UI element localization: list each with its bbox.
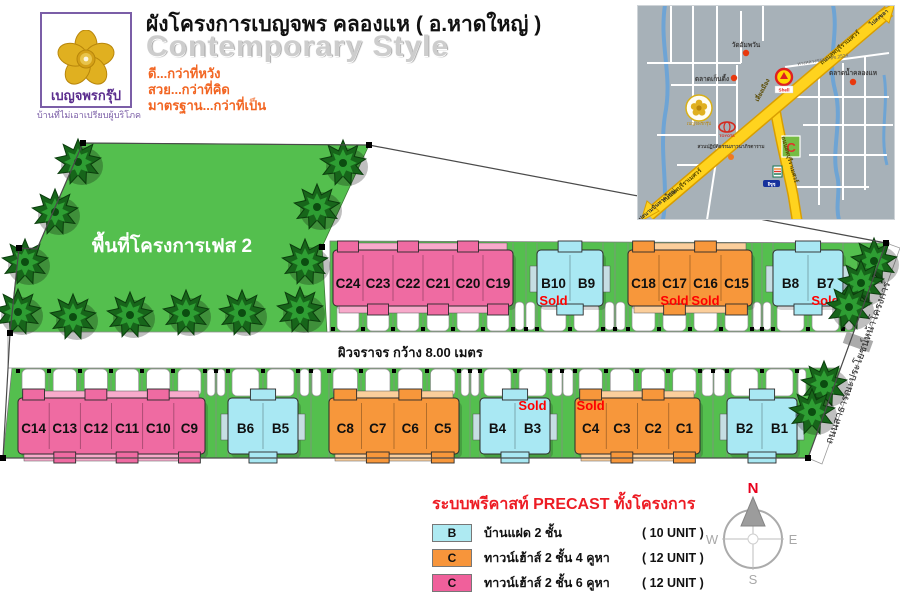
unit-label-C11: C11 bbox=[115, 421, 140, 436]
lot-corner-dot bbox=[771, 327, 775, 331]
unit-bump bbox=[428, 304, 449, 315]
legend-row-c4: C ทาวน์เฮ้าส์ 2 ชั้น 4 คูหา ( 12 UNIT ) bbox=[432, 548, 732, 568]
unit-bump bbox=[488, 304, 509, 315]
market2-dot bbox=[850, 79, 856, 85]
slogan-1: ดี...กว่าที่หวัง bbox=[148, 66, 221, 82]
driveway bbox=[563, 369, 573, 396]
unit-label-C18: C18 bbox=[631, 276, 656, 291]
driveway bbox=[217, 369, 225, 396]
unit-bump bbox=[85, 389, 107, 400]
boundary-corner-dot bbox=[0, 455, 6, 461]
sold-label-B3: Sold bbox=[518, 398, 546, 413]
unit-label-B7: B7 bbox=[817, 276, 834, 291]
lot-corner-dot bbox=[719, 327, 723, 331]
unit-label-C20: C20 bbox=[456, 276, 481, 291]
unit-bump bbox=[633, 241, 655, 252]
driveway bbox=[471, 369, 479, 396]
legend-count-c6: ( 12 UNIT ) bbox=[642, 576, 704, 590]
slogan-2: สวย...กว่าที่คิด bbox=[148, 82, 230, 98]
sold-label-C4: Sold bbox=[577, 398, 605, 413]
lot-corner-dot bbox=[226, 369, 230, 373]
lot-corner-dot bbox=[666, 369, 670, 373]
unit-label-B9: B9 bbox=[578, 276, 595, 291]
page: C24C23C22C21C20C19B10B9SoldC18C17C16C15S… bbox=[0, 0, 900, 613]
lot-corner-dot bbox=[568, 327, 572, 331]
unit-bump bbox=[23, 389, 45, 400]
unit-bump bbox=[250, 389, 275, 400]
boundary-corner-dot bbox=[80, 140, 86, 146]
unit-label-B8: B8 bbox=[782, 276, 800, 291]
lot-corner-dot bbox=[425, 369, 429, 373]
page-subtitle: Contemporary Style bbox=[146, 30, 449, 64]
legend-desc-c6: ทาวน์เฮ้าส์ 2 ชั้น 6 คูหา bbox=[484, 573, 642, 593]
legend-desc-b: บ้านแฝด 2 ชั้น bbox=[484, 523, 642, 543]
compass-rose: N W E S bbox=[700, 480, 810, 595]
unit-label-B3: B3 bbox=[524, 421, 542, 436]
unit-label-C5: C5 bbox=[434, 421, 452, 436]
lot-corner-dot bbox=[451, 327, 455, 331]
unit-label-C7: C7 bbox=[369, 421, 386, 436]
lot-corner-dot bbox=[560, 369, 564, 373]
compass-w: W bbox=[706, 532, 719, 547]
lot-corner-dot bbox=[535, 327, 539, 331]
lot-corner-dot bbox=[140, 369, 144, 373]
unit-bump bbox=[458, 241, 479, 252]
lot-corner-dot bbox=[309, 369, 313, 373]
lot-corner-dot bbox=[392, 369, 396, 373]
road-width-label: ผิวจราจร กว้าง 8.00 เมตร bbox=[338, 345, 483, 360]
lot-corner-dot bbox=[16, 369, 20, 373]
boundary-corner-dot bbox=[7, 330, 13, 336]
unit-bump bbox=[398, 241, 419, 252]
unit-label-C12: C12 bbox=[84, 421, 109, 436]
legend-chip-c6: C bbox=[432, 574, 472, 592]
unit-label-B5: B5 bbox=[272, 421, 290, 436]
shell-logo: Shell bbox=[775, 69, 793, 93]
legend-count-b: ( 10 UNIT ) bbox=[642, 526, 704, 540]
lot-corner-dot bbox=[573, 369, 577, 373]
unit-label-C9: C9 bbox=[181, 421, 198, 436]
sold-label-C17: Sold bbox=[660, 293, 688, 308]
unit-label-C2: C2 bbox=[644, 421, 661, 436]
unit-label-C15: C15 bbox=[724, 276, 749, 291]
lot-corner-dot bbox=[750, 327, 754, 331]
boundary-corner-dot bbox=[319, 244, 325, 250]
lot-corner-dot bbox=[327, 369, 331, 373]
location-map: เบญจพรกรุ๊ป TOYOTA Shell C bbox=[637, 5, 895, 220]
lot-corner-dot bbox=[171, 369, 175, 373]
lot-corner-dot bbox=[698, 369, 702, 373]
boundary-corner-dot bbox=[883, 240, 889, 246]
lot-corner-dot bbox=[760, 327, 764, 331]
boundary-corner-dot bbox=[805, 455, 811, 461]
lot-corner-dot bbox=[635, 369, 639, 373]
lot-corner-dot bbox=[391, 327, 395, 331]
lot-corner-dot bbox=[203, 369, 207, 373]
unit-bump bbox=[558, 241, 582, 252]
logo-brand-text: เบญจพรกรุ๊ป bbox=[51, 88, 121, 104]
legend-count-c4: ( 12 UNIT ) bbox=[642, 551, 704, 565]
unit-bump bbox=[147, 389, 169, 400]
lot-corner-dot bbox=[331, 327, 335, 331]
unit-label-C6: C6 bbox=[402, 421, 420, 436]
driveway bbox=[714, 369, 725, 396]
lot-corner-dot bbox=[296, 369, 300, 373]
sold-label-B10: Sold bbox=[539, 293, 567, 308]
unit-label-C14: C14 bbox=[21, 421, 46, 436]
market1-dot bbox=[731, 75, 737, 81]
lot-corner-dot bbox=[613, 327, 617, 331]
unit-bump bbox=[368, 304, 389, 315]
unit-label-B4: B4 bbox=[489, 421, 507, 436]
lot-corner-dot bbox=[261, 369, 265, 373]
unit-bump bbox=[642, 389, 664, 400]
driveway bbox=[461, 369, 469, 396]
compass-s: S bbox=[749, 572, 758, 587]
unit-label-B6: B6 bbox=[237, 421, 255, 436]
driveway bbox=[300, 369, 309, 396]
lot-corner-dot bbox=[513, 369, 517, 373]
isuzu-logo: อีซูซุ bbox=[763, 180, 780, 187]
slogan-3: มาตรฐาน...กว่าที่เป็น bbox=[148, 98, 266, 114]
legend: ระบบพรีคาสท์ PRECAST ทั้งโครงการ B บ้านแ… bbox=[432, 492, 732, 598]
compass-n: N bbox=[748, 480, 759, 497]
lot-corner-dot bbox=[361, 327, 365, 331]
unit-label-C21: C21 bbox=[426, 276, 451, 291]
unit-bump bbox=[726, 304, 748, 315]
driveway bbox=[526, 302, 535, 330]
unit-label-C1: C1 bbox=[676, 421, 694, 436]
lot-corner-dot bbox=[524, 327, 528, 331]
toyota-label: TOYOTA bbox=[719, 134, 735, 138]
location-map-svg: เบญจพรกรุ๊ป TOYOTA Shell C bbox=[637, 5, 895, 220]
unit-bump bbox=[795, 241, 820, 252]
unit-label-C17: C17 bbox=[662, 276, 687, 291]
lot-corner-dot bbox=[601, 327, 605, 331]
driveway bbox=[605, 302, 614, 330]
lot-corner-dot bbox=[626, 327, 630, 331]
lot-corner-dot bbox=[468, 369, 472, 373]
legend-desc-c4: ทาวน์เฮ้าส์ 2 ชั้น 4 คูหา bbox=[484, 548, 642, 568]
lot-corner-dot bbox=[511, 327, 515, 331]
lot-corner-dot bbox=[78, 369, 82, 373]
unit-label-C13: C13 bbox=[52, 421, 77, 436]
unit-bump bbox=[334, 389, 357, 400]
unit-label-C16: C16 bbox=[693, 276, 718, 291]
lotus-flower-icon bbox=[55, 30, 117, 88]
lot-corner-dot bbox=[760, 369, 764, 373]
driveway bbox=[515, 302, 524, 330]
seven-eleven-logo bbox=[773, 166, 782, 177]
unit-bump bbox=[338, 241, 359, 252]
driveway bbox=[616, 302, 625, 330]
unit-bump bbox=[399, 389, 422, 400]
boundary-corner-dot bbox=[366, 142, 372, 148]
lot-corner-dot bbox=[421, 327, 425, 331]
lot-corner-dot bbox=[47, 369, 51, 373]
legend-chip-c4: C bbox=[432, 549, 472, 567]
legend-chip-b: B bbox=[432, 524, 472, 542]
compass-e: E bbox=[789, 532, 798, 547]
unit-label-B10: B10 bbox=[541, 276, 566, 291]
meditation-dot bbox=[728, 154, 734, 160]
lot-corner-dot bbox=[478, 369, 482, 373]
unit-label-C24: C24 bbox=[336, 276, 361, 291]
driveway bbox=[702, 369, 713, 396]
lot-corner-dot bbox=[795, 369, 799, 373]
lot-corner-dot bbox=[214, 369, 218, 373]
unit-label-C23: C23 bbox=[366, 276, 391, 291]
meditation-label: สวนปฏิบัติธรรมภาวนาภิรตาราม bbox=[697, 143, 764, 150]
lot-corner-dot bbox=[359, 369, 363, 373]
unit-bump bbox=[695, 241, 717, 252]
lot-corner-dot bbox=[688, 327, 692, 331]
logo-tagline: บ้านที่ไม่เอาเปรียบผู้บริโภค bbox=[34, 108, 144, 122]
lot-corner-dot bbox=[457, 369, 461, 373]
unit-label-C10: C10 bbox=[146, 421, 171, 436]
lot-corner-dot bbox=[657, 327, 661, 331]
lot-corner-dot bbox=[604, 369, 608, 373]
legend-title: ระบบพรีคาสท์ PRECAST ทั้งโครงการ bbox=[432, 492, 732, 517]
project-logo-marker: เบญจพรกรุ๊ป bbox=[686, 95, 712, 127]
company-logo: เบญจพรกรุ๊ป bbox=[40, 12, 132, 108]
unit-label-B2: B2 bbox=[736, 421, 753, 436]
boundary-corner-dot bbox=[16, 245, 22, 251]
driveway bbox=[207, 369, 215, 396]
unit-label-C3: C3 bbox=[613, 421, 631, 436]
lot-corner-dot bbox=[711, 369, 715, 373]
sold-label-C16: Sold bbox=[691, 293, 719, 308]
legend-row-c6: C ทาวน์เฮ้าส์ 2 ชั้น 6 คูหา ( 12 UNIT ) bbox=[432, 573, 732, 593]
legend-row-b: B บ้านแฝด 2 ชั้น ( 10 UNIT ) bbox=[432, 523, 732, 543]
shell-label: Shell bbox=[779, 88, 790, 93]
temple-label: วัดอัมพวัน bbox=[732, 41, 761, 49]
lot-corner-dot bbox=[806, 327, 810, 331]
lot-corner-dot bbox=[548, 369, 552, 373]
driveway bbox=[312, 369, 321, 396]
driveway bbox=[763, 302, 771, 330]
temple-dot bbox=[743, 50, 749, 56]
driveway bbox=[552, 369, 562, 396]
unit-label-C19: C19 bbox=[486, 276, 511, 291]
unit-label-C22: C22 bbox=[396, 276, 421, 291]
unit-label-C8: C8 bbox=[337, 421, 355, 436]
unit-bump bbox=[749, 389, 774, 400]
lot-corner-dot bbox=[481, 327, 485, 331]
lot-corner-dot bbox=[725, 369, 729, 373]
unit-label-C4: C4 bbox=[582, 421, 600, 436]
lot-corner-dot bbox=[109, 369, 113, 373]
unit-label-B1: B1 bbox=[771, 421, 789, 436]
